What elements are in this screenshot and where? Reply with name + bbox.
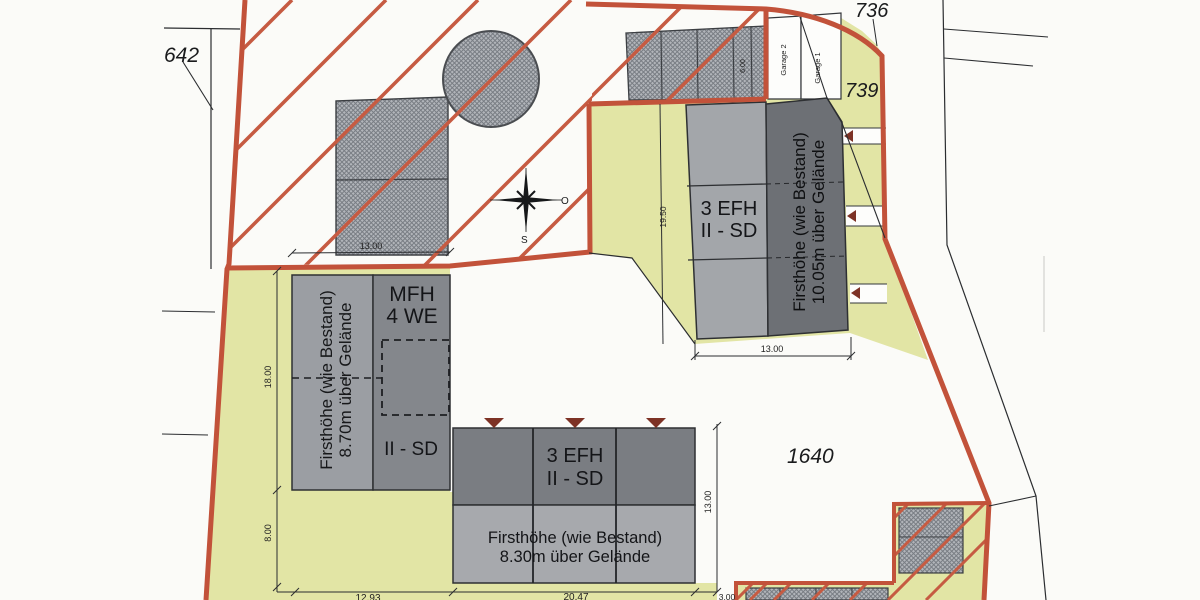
svg-text:3.00: 3.00: [719, 592, 736, 600]
svg-text:642: 642: [164, 44, 199, 67]
svg-text:MFH: MFH: [389, 283, 435, 306]
svg-text:10.05m über Gelände: 10.05m über Gelände: [809, 140, 828, 304]
svg-text:II - SD: II - SD: [701, 220, 758, 242]
svg-text:13.00: 13.00: [703, 491, 713, 514]
svg-text:4 WE: 4 WE: [386, 305, 437, 328]
svg-text:Firsthöhe (wie Bestand): Firsthöhe (wie Bestand): [317, 290, 336, 470]
svg-text:12.93: 12.93: [355, 593, 380, 600]
svg-text:O: O: [561, 196, 569, 207]
svg-text:1640: 1640: [787, 445, 834, 468]
svg-text:13.00: 13.00: [360, 241, 383, 251]
svg-text:8.70m über Gelände: 8.70m über Gelände: [336, 303, 355, 458]
svg-text:Firsthöhe (wie Bestand): Firsthöhe (wie Bestand): [488, 529, 662, 547]
svg-text:19.50: 19.50: [658, 206, 668, 228]
svg-text:6.00: 6.00: [740, 59, 747, 73]
svg-text:II - SD: II - SD: [384, 439, 438, 460]
svg-text:Garage 2: Garage 2: [779, 44, 788, 75]
svg-text:3 EFH: 3 EFH: [701, 198, 758, 220]
svg-text:II - SD: II - SD: [547, 468, 604, 490]
svg-text:736: 736: [855, 0, 889, 22]
svg-text:8.30m über Gelände: 8.30m über Gelände: [500, 548, 650, 566]
svg-text:739: 739: [845, 80, 878, 102]
svg-text:8.00: 8.00: [263, 524, 273, 542]
svg-text:Firsthöhe (wie Bestand): Firsthöhe (wie Bestand): [790, 132, 809, 312]
svg-text:18.00: 18.00: [263, 366, 273, 389]
svg-text:20.47: 20.47: [563, 592, 588, 600]
svg-text:3 EFH: 3 EFH: [547, 445, 604, 467]
svg-text:S: S: [521, 235, 528, 246]
svg-text:13.00: 13.00: [761, 344, 784, 354]
svg-text:Garage 1: Garage 1: [813, 52, 822, 83]
